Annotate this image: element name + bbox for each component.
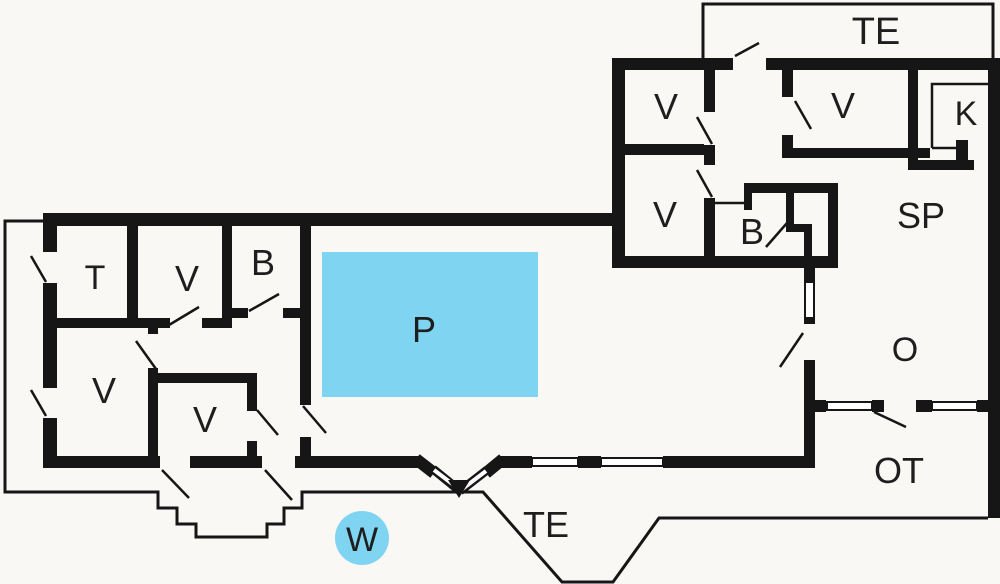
floor-plan: TE V V K V B SP T V B P V V O OT TE W bbox=[0, 0, 1000, 584]
room-label-bedroom-top: V bbox=[175, 258, 199, 299]
room-label-bedroom-nw: V bbox=[654, 86, 678, 127]
room-label-bath-upper: B bbox=[740, 211, 764, 252]
room-label-bedroom-big: V bbox=[92, 370, 116, 411]
room-label-dining: SP bbox=[897, 195, 945, 236]
room-label-toilet: T bbox=[85, 259, 106, 297]
room-label-pool: P bbox=[412, 309, 436, 350]
room-label-bedroom-ne: V bbox=[831, 85, 855, 126]
room-label-outbuilding: OT bbox=[874, 450, 924, 491]
windows bbox=[532, 282, 977, 466]
floor-plan-canvas: TE V V K V B SP T V B P V V O OT TE W bbox=[0, 0, 1000, 584]
room-label-terrace-bottom: TE bbox=[523, 504, 569, 545]
room-label-terrace-top: TE bbox=[852, 11, 901, 53]
room-label-bedroom-small: V bbox=[193, 399, 217, 440]
room-label-whirlpool: W bbox=[346, 521, 378, 559]
room-label-livingroom: O bbox=[892, 331, 918, 369]
room-label-kitchen: K bbox=[955, 95, 978, 133]
terrace-top-outline bbox=[703, 4, 993, 60]
room-label-bedroom-w2: V bbox=[653, 194, 677, 235]
room-label-bath-main: B bbox=[251, 242, 275, 283]
